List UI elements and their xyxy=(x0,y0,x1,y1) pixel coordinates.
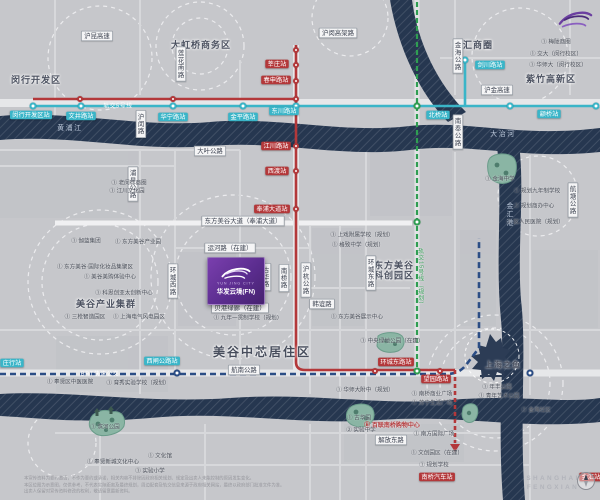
map-label-poi: ① 南方国际广场 xyxy=(414,431,455,437)
map-label-road: 沪金高速 xyxy=(481,85,513,96)
station-marker-blue xyxy=(527,370,534,377)
map-labels-layer: 闵行开发区大虹桥商务区徐汇商圈紫竹高新区美谷产业集群东方美谷 科创园区美谷中芯居… xyxy=(0,0,600,500)
map-label-poi: ① 滨河公园 xyxy=(90,424,120,430)
map-label-poi: ① 实验小学 xyxy=(135,468,165,474)
station-marker-red xyxy=(77,96,83,102)
map-label-cyan: 西闸公路站 xyxy=(144,357,180,366)
map-label-red: 奉浦大道站 xyxy=(254,205,290,214)
map-label-red: 南桥汽车站 xyxy=(419,473,455,482)
river-label-huangpu: 黄浦江 xyxy=(57,124,83,132)
disclaimer-text: 本宣传资料为要约邀请，不作为要约或承诺，相关内容不排除因政府相关规划、规定及出卖… xyxy=(24,476,284,496)
station-marker-red xyxy=(293,62,299,68)
map-label-roadv: 航塘公路 xyxy=(568,182,579,217)
map-label-cyan: 文井路站 xyxy=(66,112,96,121)
map-label-linegreen: 轨交15号线（规划） xyxy=(418,248,425,308)
map-label-poi: ① 中央绿地公园（在建） xyxy=(360,338,423,344)
map-label-poi: ① 区人民医院（规划） xyxy=(506,219,564,225)
map-label-poi: ① 华师大附中（规划） xyxy=(336,387,394,393)
station-marker-blue xyxy=(174,370,181,377)
location-map: 闵行开发区大虹桥商务区徐汇商圈紫竹高新区美谷产业集群东方美谷 科创园区美谷中芯居… xyxy=(0,0,600,500)
brand-swirl-logo xyxy=(556,6,594,32)
project-name: 华发云境(FN) xyxy=(217,287,255,296)
map-label-poi: ① 古华园 xyxy=(347,415,371,421)
map-label-poi: ① 格致中学（规划） xyxy=(332,242,384,248)
map-label-road: 沪昆高速 xyxy=(81,31,113,42)
map-label-road: 沪闵高架路 xyxy=(319,28,357,39)
station-marker-cyan xyxy=(507,103,514,110)
map-label-poi: ① 东方美谷·国际化妆品集聚区 xyxy=(57,264,133,270)
map-label-poi: ① 九年一贯制学校（规划） xyxy=(214,315,283,321)
station-marker-cyan xyxy=(30,103,37,110)
station-marker-red xyxy=(293,168,299,174)
station-marker-red xyxy=(372,368,378,374)
map-label-red: 春申路站 xyxy=(261,76,291,85)
map-label-cyan: 剑川路站 xyxy=(475,61,505,70)
map-label-poi: ① 东方美谷产业园 xyxy=(115,239,161,245)
map-label-road: 航南公路 xyxy=(228,365,260,376)
map-label-red: 望园路站 xyxy=(421,375,451,384)
station-marker-cyan xyxy=(593,103,600,110)
station-marker-red xyxy=(293,78,299,84)
district-zizhu: 紫竹高新区 xyxy=(526,74,576,84)
map-label-poi: ① 奉贤新城文化中心 xyxy=(87,459,139,465)
map-label-road: 解放东路 xyxy=(375,435,407,446)
project-logo-card: YUN JING CITY 华发云境(FN) xyxy=(207,257,265,305)
map-label-poi: ① 伽蓝集团 xyxy=(71,238,101,244)
map-label-poi: ① 规划商办中心 xyxy=(514,203,555,209)
map-label-cyan: 北桥站 xyxy=(426,111,449,120)
map-label-poi: ① 育秀实验学校（规划） xyxy=(106,380,169,386)
map-label-poi: ① 华师大（闵行校区） xyxy=(529,62,587,68)
map-label-red: 西渡站 xyxy=(265,167,288,176)
map-label-roadv: 环城东路 xyxy=(366,255,377,290)
disclaimer-line: 出卖人保留对宣传资料修改的权利，敬请留意最新资料。 xyxy=(24,489,284,496)
map-label-roadv: 沪闵路 xyxy=(136,110,147,138)
map-label-poi: ① 南桥商业广场 xyxy=(412,391,453,397)
station-marker-red xyxy=(293,143,299,149)
map-label-red: 环城东路站 xyxy=(378,358,414,367)
map-label-poi: ① 美谷美购体验中心 xyxy=(84,274,136,280)
station-marker-red xyxy=(293,206,299,212)
landmark-shanghai-fish-label: 上海之鱼 xyxy=(485,360,521,369)
map-label-poi: ① 苏宁生活广场 xyxy=(412,400,453,406)
station-marker-red xyxy=(437,368,443,374)
map-label-cyan: 闵行开发区站 xyxy=(10,111,52,120)
compass-icon xyxy=(577,472,595,490)
map-label-poi: ① 年丰公园 xyxy=(482,384,512,390)
project-swirl-icon xyxy=(219,265,253,281)
map-label-poi: ① 文创园区（在建） xyxy=(411,450,463,456)
map-label-cyan: 东川路站 xyxy=(269,107,299,116)
compass-south-needle xyxy=(584,481,588,487)
map-label-cyan: 颛桥站 xyxy=(537,110,560,119)
map-label-roadv: 南桥路 xyxy=(279,264,290,292)
station-marker-red xyxy=(170,96,176,102)
disclaimer-line: 本宣传资料为要约邀请，不作为要约或承诺，相关内容不排除因政府相关规划、规定及出卖… xyxy=(24,476,284,483)
map-label-red: 江川路站 xyxy=(261,142,291,151)
map-label-poi: ① 梅陇商圈 xyxy=(541,39,571,45)
district-minhang-kaifaqu: 闵行开发区 xyxy=(11,75,61,85)
map-label-linecyan: 轨交5号线 xyxy=(103,103,132,109)
station-marker-red xyxy=(293,47,299,53)
station-marker-cyan xyxy=(78,103,85,110)
map-label-roadv: 南奉公路 xyxy=(453,114,464,149)
map-label-poi: ① 规划九年制学校 xyxy=(514,188,560,194)
river-label-dazhi: 大治河 xyxy=(490,130,516,138)
map-label-red: 莘庄站 xyxy=(265,60,288,69)
compass-north-needle xyxy=(584,474,588,480)
map-label-roadv: 沪杭公路 xyxy=(301,262,312,297)
station-marker-red xyxy=(293,96,299,102)
map-label-poi: ① 江川文化园 xyxy=(109,188,144,194)
map-label-poi: ① 上海电气风电园区 xyxy=(113,314,165,320)
station-marker-cyan xyxy=(240,103,247,110)
map-label-poi: ① 文化馆 xyxy=(148,453,172,459)
poi-bailian-mall: Ⓑ 百联南桥购物中心 xyxy=(364,422,420,429)
map-label-poi: ① 金海中学 xyxy=(485,176,515,182)
map-label-cyan: 金平路站 xyxy=(228,113,258,122)
map-label-road: 运河路（在建） xyxy=(204,243,255,254)
map-label-roadv: 金海公路 xyxy=(453,38,464,73)
map-label-poi: ① 东方美谷展示中心 xyxy=(331,314,383,320)
map-label-lineblue: BRT快速公交 xyxy=(81,371,119,377)
station-marker-green xyxy=(414,219,421,226)
map-label-roadv: 环城西路 xyxy=(168,263,179,298)
station-marker-green xyxy=(414,368,421,375)
station-marker-green xyxy=(414,103,421,110)
map-label-poi: ① 老闵行商圈 xyxy=(111,180,146,186)
map-label-poi: ① 上戏附属学校（规划） xyxy=(330,232,393,238)
map-label-poi: ① 科思创亚太创新中心 xyxy=(95,290,153,296)
map-label-poi: ① 金海社区 xyxy=(521,407,551,413)
map-label-roadv: 莲花南路 xyxy=(176,46,187,81)
map-label-poi: ① 规划学校 xyxy=(419,462,449,468)
district-meigu-residential: 美谷中芯居住区 xyxy=(213,346,311,360)
district-meigu-industry: 美谷产业集群 xyxy=(76,299,136,309)
watermark-line1: SHANGHAI xyxy=(526,474,579,481)
map-label-cyan: 华宁路站 xyxy=(158,113,188,122)
map-label-road: 东方美谷大道（奉浦大道） xyxy=(201,216,284,227)
project-tagline: YUN JING CITY xyxy=(217,281,255,285)
station-marker-cyan xyxy=(170,103,177,110)
map-label-road: 大叶公路 xyxy=(194,146,226,157)
district-dongfang-meigu: 东方美谷 科创园区 xyxy=(374,261,414,282)
map-label-poi: ① 三枪智造园区 xyxy=(65,314,106,320)
map-label-road: 韩谊路 xyxy=(309,299,335,310)
map-label-poi: ① 青年艺术公园 xyxy=(479,393,520,399)
map-label-poi: ① 奉贤区中医医院 xyxy=(47,379,93,385)
map-label-cyan: 庄行站 xyxy=(0,359,23,368)
watermark-line2: FENGXIAN xyxy=(527,483,579,490)
map-label-poi: ① 交大（闵行校区） xyxy=(530,51,582,57)
